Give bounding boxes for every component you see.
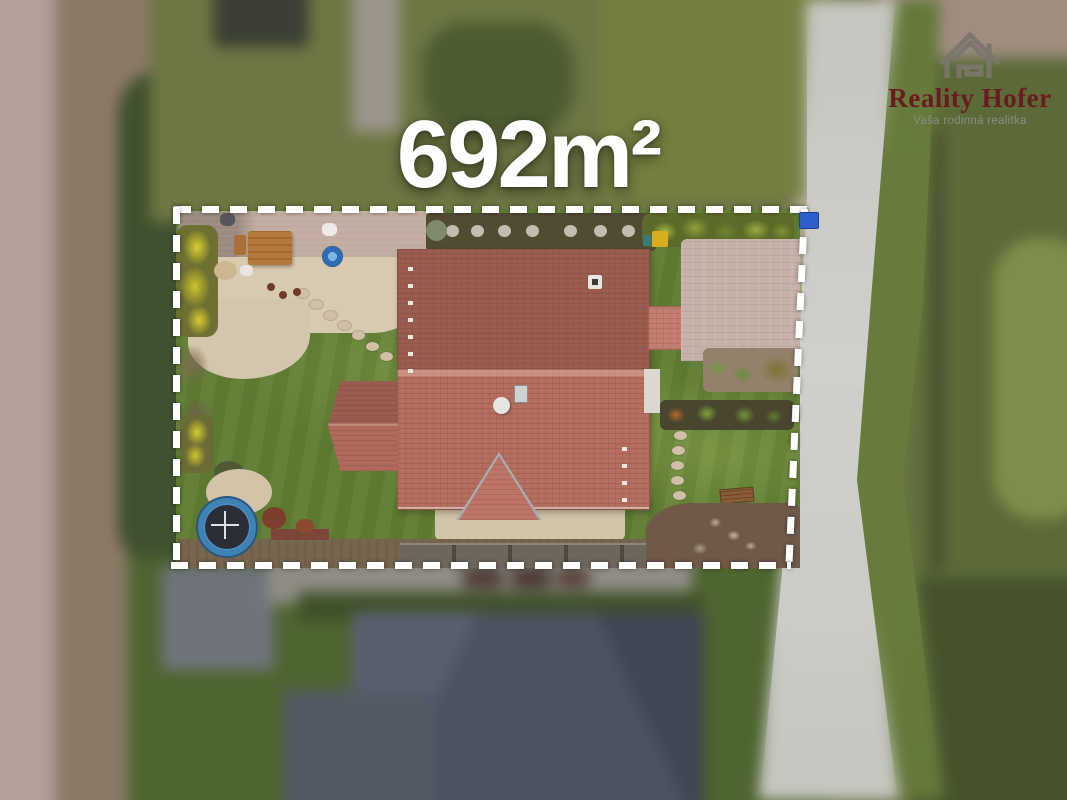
rock-garden-bed [646, 503, 800, 568]
forsythia-bushes [176, 225, 218, 337]
plant-pot [279, 291, 287, 299]
forsythia-bushes [180, 415, 214, 473]
red-bush [262, 507, 286, 529]
stepping-stone [380, 352, 393, 361]
brand-tagline: Vaša rodinná realitka [872, 116, 1067, 128]
blue-mailbox [799, 212, 819, 229]
roof-ladder-steps [408, 258, 413, 373]
aerial-photo: 692m² Reality Hofer Vaša rodinná realitk… [0, 0, 1067, 800]
bush [426, 220, 447, 241]
skylight [514, 385, 528, 403]
garden-bench [719, 487, 754, 505]
patio-bench [234, 235, 246, 255]
satellite-dish [493, 397, 510, 414]
stepping-stone [674, 431, 687, 440]
stepping-stone [366, 342, 379, 351]
grill [220, 213, 235, 226]
property-plot [176, 209, 800, 568]
trampoline [198, 498, 256, 556]
right-fence-line [932, 128, 942, 570]
brand-logo: Reality Hofer Vaša rodinná realitka [872, 14, 1067, 128]
brand-name: Reality Hofer [872, 85, 1067, 112]
wood-pile [213, 0, 309, 47]
stepping-stone [324, 311, 337, 320]
chimney [588, 275, 602, 289]
stepping-stone [673, 491, 686, 500]
shrub [526, 225, 539, 237]
driveway [681, 239, 800, 361]
main-house-roof [397, 249, 650, 510]
neighbor-garage-roof [162, 566, 274, 670]
garden-bed [703, 348, 798, 392]
stepping-stone [671, 476, 684, 485]
white-annex [644, 369, 660, 413]
fire-pit [214, 261, 237, 280]
roof-ladder-steps [622, 434, 627, 502]
patio-chair [322, 223, 337, 236]
property-boundary-bottom [171, 562, 791, 569]
red-bush [296, 519, 314, 533]
yellow-bin [652, 231, 668, 247]
shrub [622, 225, 635, 237]
stepping-stone [338, 321, 351, 330]
shrub [446, 225, 459, 237]
bottom-planter [557, 568, 589, 587]
stepping-stone [672, 446, 685, 455]
property-boundary-left [173, 207, 180, 565]
shrub [498, 225, 511, 237]
plant-pot [267, 283, 275, 291]
neighbor-house-roof-wing [283, 690, 435, 800]
right-light-lawn [993, 238, 1067, 520]
bottom-planter [511, 567, 551, 588]
bottom-planter [463, 567, 503, 588]
shrub [471, 225, 484, 237]
plant-pot [293, 288, 301, 296]
teal-bin [643, 235, 651, 246]
hot-tub [322, 246, 343, 267]
area-label: 692m² [318, 106, 738, 204]
patio-table [248, 231, 292, 265]
stepping-stone [352, 331, 365, 340]
shrub [564, 225, 577, 237]
hedge-row [660, 400, 794, 430]
stepping-stone [671, 461, 684, 470]
house-logo-icon [932, 14, 1008, 78]
shrub [594, 225, 607, 237]
patio-chair [240, 265, 253, 276]
stepping-stone [310, 300, 323, 309]
garage-roof [328, 381, 398, 471]
